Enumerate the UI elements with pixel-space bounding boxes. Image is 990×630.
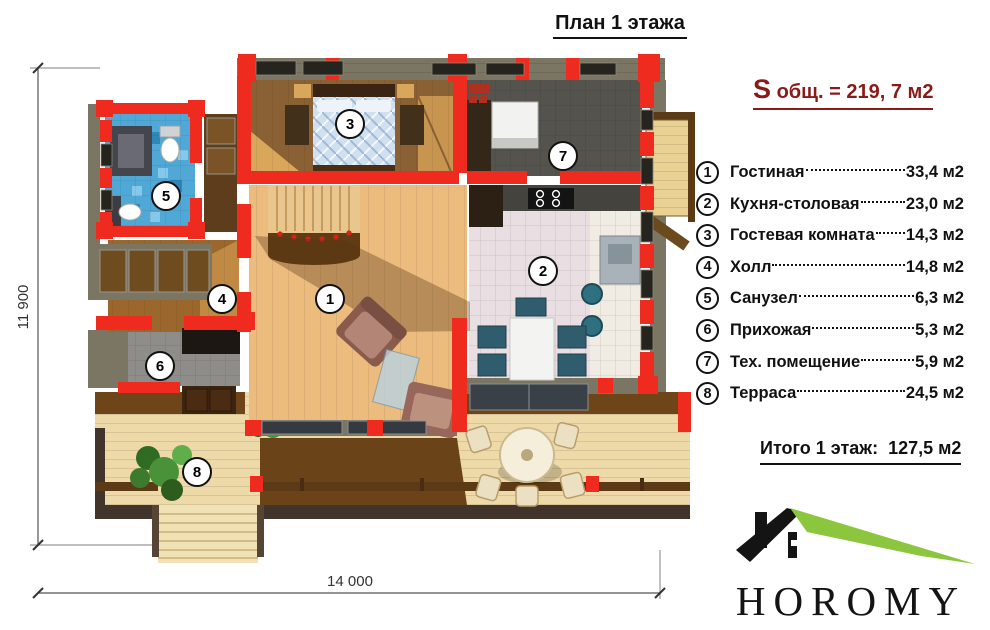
logo-house-icon: [725, 492, 977, 574]
terrace-steps: [152, 505, 264, 563]
room-name: Гостиная: [730, 163, 805, 182]
room-area: 23,0 м2: [906, 195, 964, 214]
room-marker-5: 5: [152, 182, 180, 210]
dot-leader: [799, 295, 914, 297]
legend-item: 4 Холл 14,8 м2: [696, 256, 964, 279]
room-area: 24,5 м2: [906, 384, 964, 403]
room-name: Гостевая комната: [730, 226, 875, 245]
room-marker-8: 8: [183, 458, 211, 486]
room-area: 5,9 м2: [915, 353, 964, 372]
room-number-badge: 5: [696, 287, 719, 310]
room-area: 6,3 м2: [915, 289, 964, 308]
room-marker-2: 2: [529, 257, 557, 285]
room-area: 33,4 м2: [906, 163, 964, 182]
dot-leader: [861, 201, 905, 203]
legend-item: 2 Кухня-столовая 23,0 м2: [696, 193, 964, 216]
dimension-height-label: 11 900: [15, 285, 32, 330]
legend-item: 1 Гостиная 33,4 м2: [696, 161, 964, 184]
dot-leader: [772, 264, 904, 266]
dot-leader: [861, 359, 914, 361]
room-number-badge: 7: [696, 351, 719, 374]
page-title: План 1 этажа: [470, 12, 770, 35]
area-symbol: S: [753, 74, 771, 104]
legend-item: 6 Прихожая 5,3 м2: [696, 319, 964, 342]
room-area: 5,3 м2: [915, 321, 964, 340]
svg-text:6: 6: [156, 358, 164, 375]
dot-leader: [797, 390, 905, 392]
brand-name: HOROMY: [725, 577, 977, 625]
svg-text:3: 3: [346, 116, 354, 133]
room-name: Холл: [730, 258, 771, 277]
company-logo: HOROMY: [725, 492, 977, 625]
room-marker-6: 6: [146, 352, 174, 380]
floor-plan-sheet: { "title": "План 1 этажа", "summary": { …: [0, 0, 990, 630]
svg-text:4: 4: [218, 291, 227, 308]
room-name: Кухня-столовая: [730, 195, 860, 214]
entrance-door: [182, 386, 236, 414]
svg-text:8: 8: [193, 464, 201, 481]
room-number-badge: 8: [696, 382, 719, 405]
svg-text:2: 2: [539, 263, 547, 280]
room-number-badge: 6: [696, 319, 719, 342]
total-area-callout: S общ. = 219, 7 м2: [753, 74, 933, 110]
room-marker-7: 7: [549, 142, 577, 170]
svg-text:7: 7: [559, 148, 567, 165]
dot-leader: [876, 232, 905, 234]
room-name: Прихожая: [730, 321, 811, 340]
area-value: общ. = 219, 7 м2: [771, 81, 933, 103]
room-number-badge: 1: [696, 161, 719, 184]
room-number-badge: 3: [696, 224, 719, 247]
room-area: 14,3 м2: [906, 226, 964, 245]
legend-item: 8 Терраса 24,5 м2: [696, 382, 964, 405]
floor-total-label: Итого 1 этаж: 127,5 м2: [760, 438, 961, 465]
dot-leader: [812, 327, 914, 329]
dimension-width-label: 14 000: [327, 573, 373, 590]
dot-leader: [806, 169, 905, 171]
room-name: Тех. помещение: [730, 353, 860, 372]
room-area: 14,8 м2: [906, 258, 964, 277]
room-name: Санузел: [730, 289, 798, 308]
room-marker-3: 3: [336, 110, 364, 138]
room-name: Терраса: [730, 384, 796, 403]
svg-text:5: 5: [162, 188, 170, 205]
room-number-badge: 4: [696, 256, 719, 279]
legend-item: 5 Санузел 6,3 м2: [696, 287, 964, 310]
svg-text:1: 1: [326, 291, 334, 308]
room-marker-1: 1: [316, 285, 344, 313]
room-legend: 1 Гостиная 33,4 м2 2 Кухня-столовая 23,0…: [696, 161, 964, 414]
legend-item: 7 Тех. помещение 5,9 м2: [696, 350, 964, 373]
room-marker-4: 4: [208, 285, 236, 313]
room-number-badge: 2: [696, 193, 719, 216]
legend-item: 3 Гостевая комната 14,3 м2: [696, 224, 964, 247]
